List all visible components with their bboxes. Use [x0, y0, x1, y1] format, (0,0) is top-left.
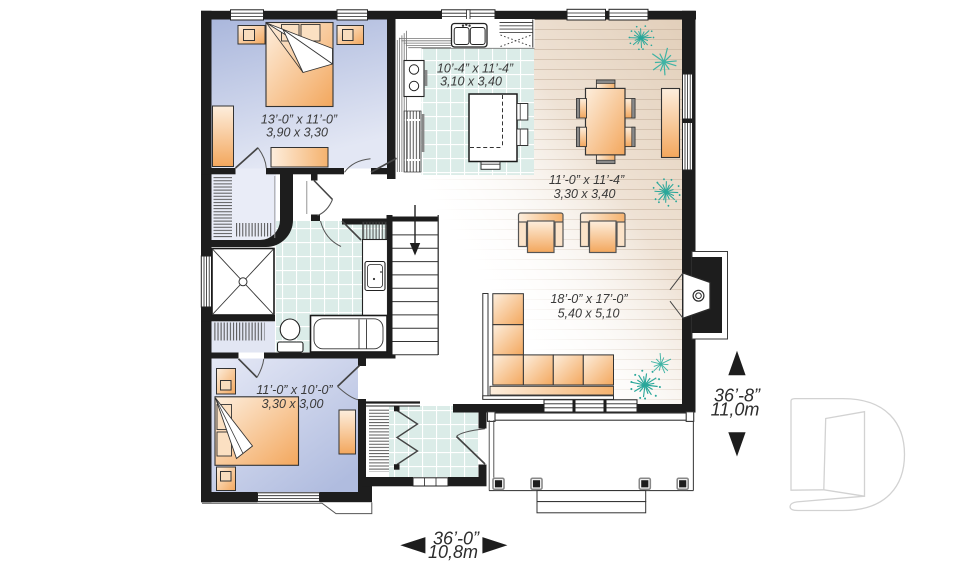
svg-text:10’-4” x 11’-4”: 10’-4” x 11’-4”	[437, 62, 514, 76]
svg-text:3,30 x 3,00: 3,30 x 3,00	[262, 397, 324, 411]
svg-text:5,40 x 5,10: 5,40 x 5,10	[558, 307, 620, 321]
svg-text:3,30 x 3,40: 3,30 x 3,40	[554, 187, 616, 201]
svg-text:10,8m: 10,8m	[428, 542, 478, 562]
svg-text:11’-0” x 10’-0”: 11’-0” x 10’-0”	[256, 383, 333, 397]
svg-text:13’-0” x 11’-0”: 13’-0” x 11’-0”	[261, 113, 338, 127]
svg-text:3,90 x 3,30: 3,90 x 3,30	[266, 126, 328, 140]
svg-text:11,0m: 11,0m	[711, 400, 760, 420]
svg-text:11’-0” x 11’-4”: 11’-0” x 11’-4”	[549, 173, 625, 187]
svg-text:3,10 x 3,40: 3,10 x 3,40	[440, 75, 502, 89]
svg-text:18’-0” x 17’-0”: 18’-0” x 17’-0”	[550, 292, 628, 306]
